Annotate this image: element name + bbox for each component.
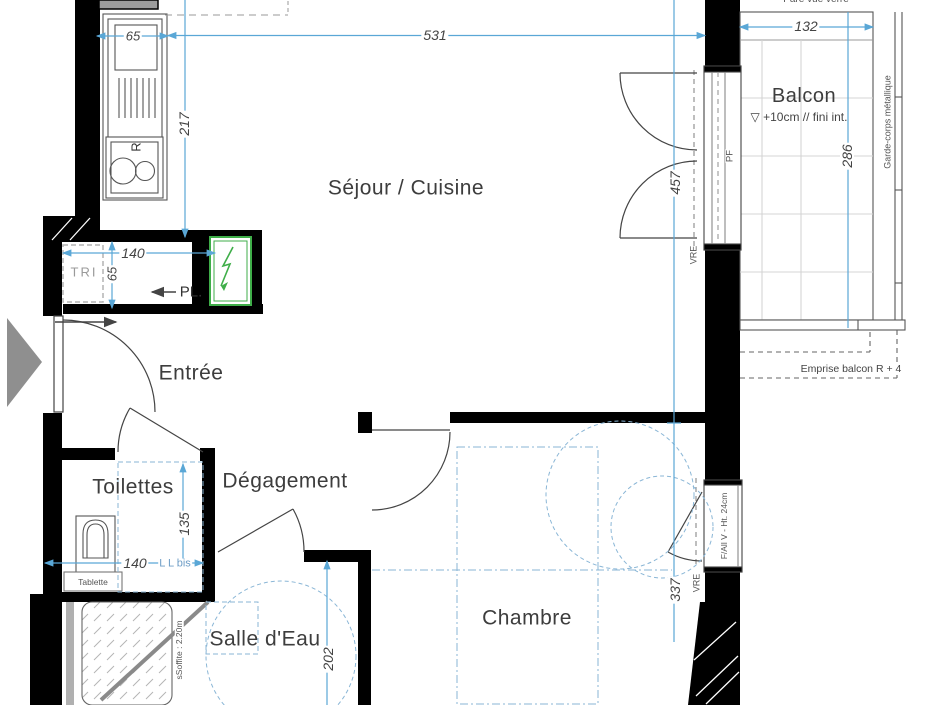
wall-kitchen-left [75,0,100,230]
bed-outline [457,447,598,704]
appliance-r-label: R [130,142,143,151]
floor-plan: Séjour / Cuisine Balcon ▽ +10cm // fini … [0,0,940,705]
salleeau-door-leaf [218,509,293,552]
room-label-degagement: Dégagement [222,471,347,492]
vre-label-sejour: VRE [690,246,699,265]
tablette-label: Tablette [78,578,108,587]
kitchen-counter-top-box [99,0,158,9]
wall-pl-top [98,230,192,242]
electrical-panel [210,237,251,305]
wall-chambre-vertical [358,550,371,705]
room-label-balcon: Balcon [772,86,836,106]
dim-135: 135 [177,510,191,537]
room-label-toilettes: Toilettes [92,477,174,498]
balcon-level-note: ▽ +10cm // fini int. [751,111,848,123]
salleeau-door-arc [293,509,304,552]
room-label-sejour-cuisine: Séjour / Cuisine [328,178,484,199]
toilettes-door-leaf [130,408,203,452]
balcony-bottom-band [740,320,905,330]
entrance-door-leaf [54,316,63,412]
wall-right-mid [705,250,740,480]
dim-140-toilettes: 140 [121,556,148,570]
dim-337: 337 [668,576,682,603]
wall-sejour-chambre [450,412,705,423]
wall-toilettes-right [202,448,215,594]
window-pf-frame [704,66,741,250]
garde-corps-note: Garde-corps métallique [884,75,893,169]
dim-457: 457 [668,169,682,196]
pf-door-arc-bottom [620,161,697,238]
dim-132: 132 [792,19,819,33]
guide-lines [165,1,288,15]
dim-286: 286 [840,142,854,169]
chambre-turning-circle-large [546,421,694,569]
wall-left-mid [43,413,62,594]
dim-65-kitchen: 65 [124,30,142,43]
room-label-entree: Entrée [159,363,224,384]
emprise-balcon-note: Emprise balcon R + 4 [800,364,903,375]
pf-door-arc-top [620,73,697,150]
room-label-chambre: Chambre [482,608,572,629]
tri-label: TRI [71,266,98,279]
window-fallv-cap-top [704,480,742,485]
soffit-note: sSoffite : 2.20m [175,620,184,681]
window-pf-cap-bottom [704,244,741,250]
wall-below-window [705,572,740,604]
pf-window-label: PF [725,149,735,163]
shower-tray [82,602,172,705]
dim-531: 531 [421,28,448,42]
vre-label-chambre: VRE [693,574,702,593]
pare-vue-note: Pare vue verre [783,0,849,5]
chambre-window-arc [668,552,702,561]
dim-217: 217 [177,110,191,137]
room-label-salle-eau: Salle d'Eau [209,629,320,650]
wall-left-upper [43,230,62,316]
wall-topright-column [705,0,740,66]
window-pf-cap-top [704,66,741,72]
dim-65-pl: 65 [106,265,119,283]
chambre-turning-circle-small [611,476,713,578]
window-sill-note: F/All V - Ht. 24cm [720,492,729,561]
dim-202: 202 [321,645,335,672]
wall-salleeau-degagement [304,550,370,562]
window-fallv-cap-bottom [704,567,742,572]
wall-angled-bottom-right [688,602,740,705]
entrance-triangle-marker [7,318,42,407]
entrance-door-arc [63,320,155,412]
ll-bis-note: L L bis [158,559,192,570]
guardrail-ticks [895,97,902,283]
chambre-door-arc [372,432,450,510]
dim-140-pl: 140 [119,246,146,260]
toilettes-door-arc [118,408,130,452]
wall-left-bottom [30,594,62,705]
balcony [740,12,905,378]
chambre-window-leaf [668,492,702,552]
wall-chambre-door-post [358,412,372,433]
wall-toilettes-top [62,448,115,460]
wall-toilettes-bottom [43,592,215,602]
panel-frame [210,237,251,305]
wall-finish-strip [66,602,74,705]
pl-closet-label: PL. [180,285,203,300]
